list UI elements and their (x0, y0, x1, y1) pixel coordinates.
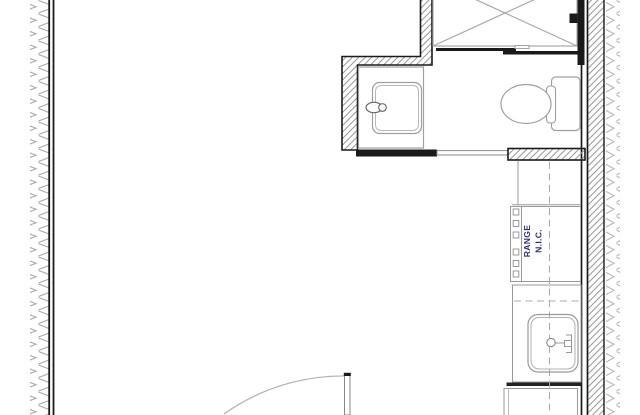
kitchen-faucet-icon (566, 335, 572, 353)
shower-valve-icon (570, 14, 578, 24)
floor-plan-drawing: RANGE N.I.C. (0, 0, 640, 415)
range-knob-strip (511, 207, 522, 282)
shower-east-wall (578, 0, 585, 65)
shower-door-panel-2 (503, 51, 578, 55)
shower-pan (433, 0, 577, 46)
range-knob-3 (513, 232, 519, 238)
toilet-bowl (501, 85, 551, 124)
pocket-door (437, 151, 508, 155)
bathroom-south-wall-solid (356, 150, 437, 157)
range-label-line1: RANGE (522, 225, 532, 258)
range-label-line2: N.I.C. (534, 229, 544, 253)
range-knob-5 (513, 261, 519, 267)
counter-bold-edge (507, 383, 583, 387)
toilet (501, 77, 580, 131)
shower-door-handle (515, 46, 529, 49)
range-knob-2 (513, 221, 519, 227)
kitchen-sink (528, 315, 578, 373)
vanity-faucet-knob-icon (379, 104, 387, 112)
kitchen-counter-run (504, 161, 582, 415)
bathroom-partition-walls (342, 0, 585, 160)
door-leaf (345, 374, 351, 415)
vanity-sink (359, 67, 424, 148)
shower-x-diagonal-2 (433, 0, 577, 46)
range-knob-1 (513, 209, 519, 215)
right-wall-insulation-hatch (606, 0, 620, 415)
range-label: RANGE N.I.C. (522, 225, 544, 258)
shower-door-panel-1 (436, 48, 516, 51)
shower (433, 0, 578, 55)
left-wall-insulation-hatch (30, 0, 49, 415)
bathroom-south-wall-hatched (508, 149, 585, 161)
right-wall-hatch (589, 0, 604, 415)
range-knob-4 (513, 249, 519, 255)
left-exterior-wall (30, 0, 54, 415)
range-knob-6 (513, 271, 519, 277)
kitchen-sink-drain-icon (547, 338, 555, 346)
base-cabinet (504, 389, 578, 415)
right-exterior-wall (582, 0, 621, 415)
sink-counter (513, 285, 582, 382)
kitchen-faucet-base (565, 341, 572, 347)
door-swing-arc (224, 376, 349, 414)
door-leaf-cap (344, 373, 351, 376)
shower-x-diagonal-1 (433, 0, 577, 46)
swing-door (224, 373, 351, 415)
bathroom-west-wall (342, 0, 432, 150)
floor-plan-canvas: RANGE N.I.C. (0, 0, 640, 415)
